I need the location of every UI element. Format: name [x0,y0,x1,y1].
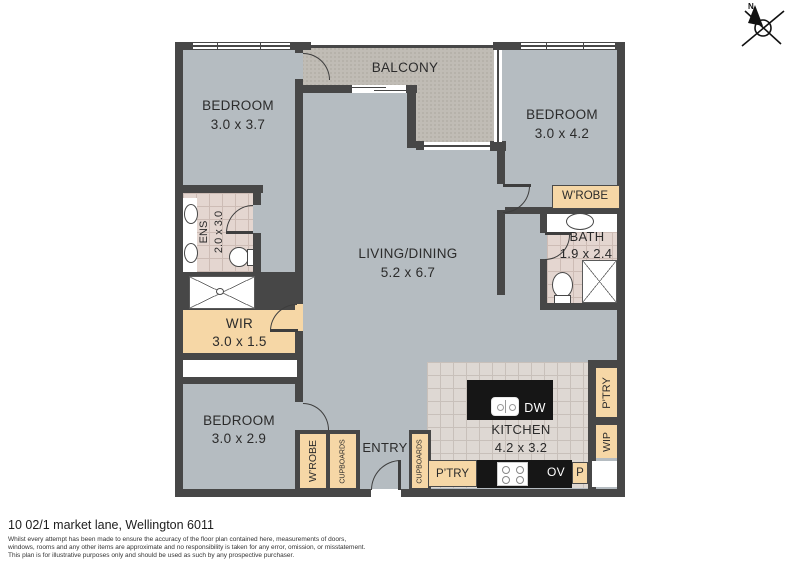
store-void [183,360,297,377]
wip-label: WIP [596,425,617,458]
wall [617,42,625,497]
toilet-cistern-icon [247,249,254,266]
dishwasher-label: DW [520,402,550,416]
disclaimer-line: This plan is for illustrative purposes o… [8,552,294,559]
wall [175,42,183,497]
wall [497,143,505,295]
compass-rose: N [728,2,792,48]
wall [588,360,617,368]
wall [416,141,424,150]
wir-dims: 3.0 x 1.5 [183,335,296,350]
compass-north-label: N [748,2,754,11]
island-sink-icon [491,397,519,416]
cooktop-icon [497,462,528,486]
pantry-kitchen-label: P’TRY [428,460,477,487]
wall [540,214,547,310]
living-dining-dims: 5.2 x 6.7 [340,266,476,281]
kitchen-dims: 4.2 x 3.2 [485,441,557,455]
door-leaf [503,184,531,187]
floor-plan: BALCONY BEDROOM 3.0 x 3.7 BEDROOM 3.0 x … [0,0,800,566]
door-opening [253,205,261,233]
balcony-balustrade [301,45,496,48]
door-opening [295,402,303,430]
door-opening [295,53,303,79]
pantry-p-label: P [572,462,588,484]
bath-dims: 1.9 x 2.4 [550,247,622,261]
bedroom3-dims: 3.0 x 2.9 [183,432,295,447]
balcony-label: BALCONY [345,61,465,76]
bedroom1-dims: 3.0 x 3.7 [183,118,293,133]
shower-icon [582,260,617,303]
wall [301,85,352,93]
window [521,43,615,49]
bedroom2-dims: 3.0 x 4.2 [507,127,617,142]
wall [540,303,625,310]
entry-door-leaf [398,460,401,490]
disclaimer-line: windows, rooms and any other items are a… [8,544,365,551]
sliding-door [352,85,406,93]
address: 10 02/1 market lane, Wellington 6011 [8,518,214,532]
shower-drain-icon [216,288,224,295]
wall [590,417,617,425]
pantry-right-label: P’TRY [596,368,617,417]
disclaimer-line: Whilst every attempt has been made to en… [8,536,346,543]
entry-door-opening [371,489,401,497]
bath-label: BATH [556,230,618,244]
wall [175,353,303,360]
window [193,43,290,49]
wall [175,377,303,384]
ensuite-label: ENS 2.0 x 3.0 [188,196,236,268]
entry-label: ENTRY [356,441,414,455]
door-opening [263,185,295,193]
sink-icon [566,213,594,230]
cupboards-hall-label: CUPBOARDS [330,434,356,488]
void-box [592,461,617,487]
cupboards-entry-label: CUPBOARDS [409,434,431,488]
window [424,142,490,150]
living-dining-label: LIVING/DINING [340,247,476,262]
wir-label: WIR [183,317,296,332]
window [494,50,502,142]
toilet-cistern-icon [554,295,571,304]
bedroom2-label: BEDROOM [507,108,617,123]
bedroom1-label: BEDROOM [183,99,293,114]
oven-label: OV [542,466,570,479]
wardrobe-bed2-label: W’ROBE [552,185,618,207]
bedroom3-label: BEDROOM [183,414,295,429]
wardrobe-bed3-label: W’ROBE [300,434,326,488]
wall [407,85,416,148]
kitchen-label: KITCHEN [485,423,557,437]
